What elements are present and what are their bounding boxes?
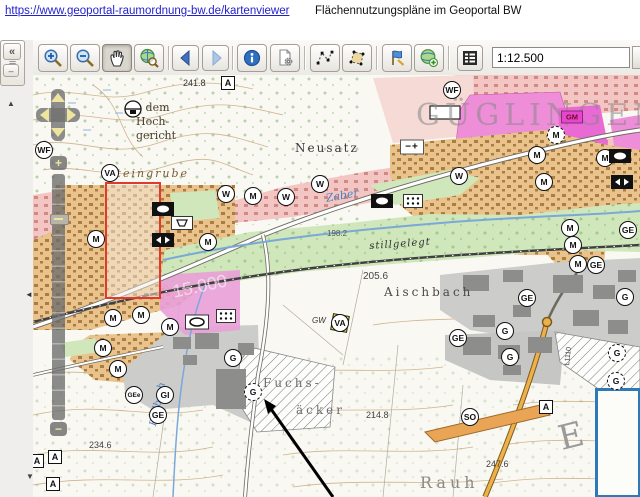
legend-button[interactable] bbox=[457, 45, 483, 71]
zoom-in-slider-button[interactable]: + bbox=[50, 156, 67, 170]
arrow-right-icon bbox=[206, 48, 226, 68]
geoportal-link[interactable]: https://www.geoportal-raumordnung-bw.de/… bbox=[5, 5, 289, 17]
panel-scroll-up-button[interactable]: ▲ bbox=[5, 98, 17, 108]
measure-area-button[interactable] bbox=[342, 44, 372, 72]
print-settings-button[interactable] bbox=[270, 44, 300, 72]
triangle-up-icon: ▲ bbox=[7, 99, 15, 108]
basemap-graphics bbox=[33, 75, 640, 497]
toolbar-separator bbox=[304, 46, 305, 70]
page-header: https://www.geoportal-raumordnung-bw.de/… bbox=[0, 0, 640, 40]
arrow-left-icon bbox=[176, 48, 196, 68]
zoom-slider-track[interactable] bbox=[52, 174, 65, 420]
panel-collapse-button[interactable]: « bbox=[3, 43, 21, 60]
map-viewport[interactable]: 241.8Ob demHoch-gerichtGÜGLINGENNeusatzS… bbox=[33, 75, 640, 497]
hand-icon bbox=[106, 47, 128, 69]
toolbar-separator bbox=[232, 46, 233, 70]
chevron-double-left-icon: « bbox=[9, 46, 15, 58]
zoom-slider-handle[interactable] bbox=[50, 214, 69, 225]
pan-control[interactable] bbox=[35, 88, 81, 142]
scale-input[interactable] bbox=[492, 47, 630, 68]
back-button[interactable] bbox=[172, 45, 199, 71]
zoom-in-button[interactable] bbox=[38, 44, 68, 72]
toolbar-separator bbox=[376, 46, 377, 70]
collapsed-side-panel: « ‒ ▲ ≡ ◄ ▼ bbox=[0, 40, 34, 497]
info-button[interactable] bbox=[237, 44, 267, 72]
magnifier-plus-icon bbox=[42, 47, 64, 69]
toolbar-separator bbox=[448, 46, 449, 70]
globe-plus-icon bbox=[418, 47, 440, 69]
document-gear-icon bbox=[274, 47, 296, 69]
info-icon bbox=[241, 47, 263, 69]
toolbar-separator bbox=[168, 46, 169, 70]
draw-button[interactable] bbox=[382, 44, 412, 72]
pan-button[interactable] bbox=[102, 44, 132, 72]
zoom-out-button[interactable] bbox=[70, 44, 100, 72]
dash-icon: ‒ bbox=[8, 66, 13, 76]
forward-button[interactable] bbox=[202, 45, 229, 71]
full-extent-button[interactable] bbox=[134, 44, 164, 72]
scale-dropdown-button[interactable] bbox=[632, 46, 640, 69]
measure-line-button[interactable] bbox=[310, 44, 340, 72]
map-toolbar bbox=[33, 40, 640, 76]
measure-area-icon bbox=[346, 47, 368, 69]
zoom-out-slider-button[interactable]: − bbox=[50, 422, 67, 436]
triangle-left-icon: ◄ bbox=[25, 290, 33, 299]
kartenviewer-screenshot: https://www.geoportal-raumordnung-bw.de/… bbox=[0, 0, 640, 497]
list-icon bbox=[460, 48, 480, 68]
measure-line-icon bbox=[314, 47, 336, 69]
flag-icon bbox=[386, 47, 408, 69]
page-title: Flächennutzungspläne im Geoportal BW bbox=[315, 5, 521, 17]
panel-minimize-button[interactable]: ‒ bbox=[3, 64, 19, 77]
add-layer-button[interactable] bbox=[414, 44, 444, 72]
magnifier-minus-icon bbox=[74, 47, 96, 69]
globe-magnifier-icon bbox=[138, 47, 160, 69]
